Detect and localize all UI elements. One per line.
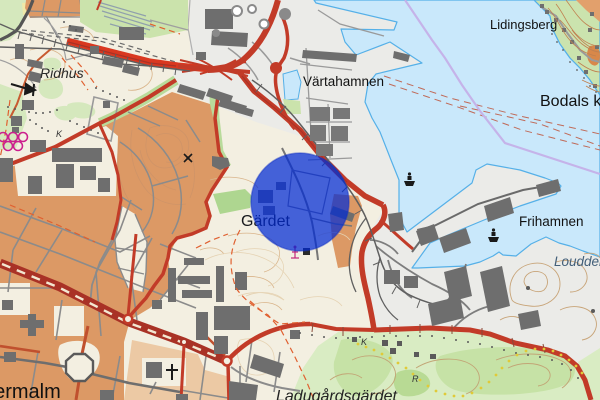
svg-text:Ridhus: Ridhus (40, 65, 84, 81)
svg-text:K: K (56, 129, 63, 139)
svg-text:Lidingsberg: Lidingsberg (490, 17, 557, 32)
svg-text:Värtahamnen: Värtahamnen (303, 74, 384, 89)
svg-text:K: K (361, 337, 368, 347)
svg-text:Bodals k: Bodals k (540, 93, 600, 110)
svg-text:R: R (412, 374, 419, 384)
svg-text:Ladugårdsgärdet: Ladugårdsgärdet (276, 387, 398, 400)
svg-text:Louddens: Louddens (554, 254, 600, 269)
svg-text:Östermalm: Östermalm (0, 381, 61, 400)
svg-text:Frihamnen: Frihamnen (519, 214, 584, 229)
